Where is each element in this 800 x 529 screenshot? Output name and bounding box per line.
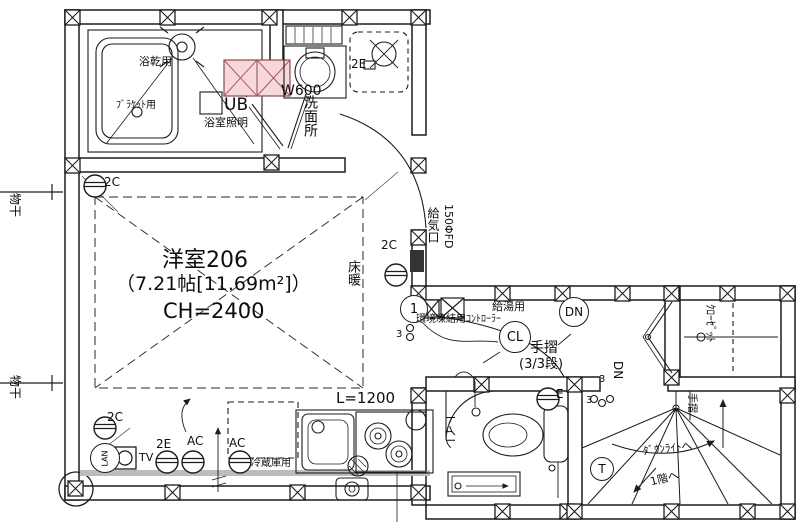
outlet-2c-right-icon [385, 264, 407, 286]
toilet-bowl [483, 414, 543, 456]
t-symbol-badge: T [590, 457, 614, 481]
cl-text: CL [507, 330, 523, 345]
outlet-2e-top-label: 2E [351, 58, 366, 70]
room-name-label: 洋室206 [162, 250, 248, 272]
floor-plan: 浴乾用 ﾌﾞﾗｹｯﾄ用 UB 浴室照明 洗面所 W600 2E 2C 2C 2C… [0, 0, 800, 529]
outlet-ac1-label: AC [187, 435, 203, 447]
tv-outlet-label: TV [139, 452, 153, 463]
toilet-name-label: トイレ [444, 413, 456, 449]
water-heater-label: 給湯用 [492, 301, 525, 312]
ub-label: UB [224, 97, 248, 114]
toilet-tank [544, 406, 568, 462]
ceiling-light-icon [370, 40, 398, 68]
downlight-icon [472, 408, 480, 416]
bathroom-light-label: 浴室照明 [204, 117, 248, 128]
supply-vent-label: 給気口 [427, 207, 439, 243]
laundry-pole-label-2: 物干 [9, 375, 21, 399]
handrail-steps-label: (3/3段) [519, 358, 563, 371]
room-area-label: （7.21帖[11.69m²]） [116, 275, 311, 294]
switch3-label-c: 3 [586, 396, 592, 406]
room-ceiling-height-label: CH=2400 [163, 301, 265, 322]
dn-hall-badge: DN [559, 297, 589, 327]
t-symbol-text: T [598, 462, 605, 476]
outlet-2c-right-label: 2C [381, 239, 397, 251]
lan-text: LAN [100, 450, 109, 466]
fridge-label: 冷蔵庫用 [251, 459, 291, 469]
cl-badge: CL [499, 321, 531, 353]
outlet-e-toilet-label: E [556, 388, 564, 400]
mirror [286, 26, 342, 44]
kitchen-length-label: L=1200 [336, 391, 395, 406]
dn-stairs-label: DN [612, 361, 624, 379]
lan-badge: LAN [90, 443, 120, 473]
ub-unit-box [200, 92, 222, 114]
supply-vent-size-label: 150ΦFD [443, 204, 454, 248]
switch3-label-a: 3 [396, 330, 402, 340]
closet-name-label: ｸﾛｰｾﾞｯﾄ [705, 304, 716, 343]
outlet-2e-bottom-icon [156, 451, 178, 473]
outlet-icons [84, 175, 407, 473]
outlet-2e-bottom-label: 2E [156, 438, 171, 450]
handrail-label: 手摺 [530, 341, 558, 355]
supply-vent-icon [410, 250, 424, 272]
floor-heating-label: 床暖 [346, 260, 359, 286]
controller-label: 環境凍結用ｺﾝﾄﾛｰﾗｰ [416, 315, 501, 325]
washroom-name-label: 洗面所 [303, 95, 317, 137]
washroom-width-label: W600 [281, 84, 322, 98]
outlet-2c-topleft-label: 2C [104, 176, 120, 188]
laundry-pole-label-1: 物干 [9, 193, 21, 217]
toilet-shelf [448, 472, 520, 496]
outlet-ac2-icon [229, 451, 251, 473]
faucet [312, 421, 324, 433]
outlet-ac1-icon [182, 451, 204, 473]
outlet-2c-bottom-label: 2C [107, 411, 123, 423]
bathroom-dryer-label: 浴乾用 [139, 56, 172, 67]
outlet-ac2-label: AC [229, 437, 245, 449]
bathroom-bracket-label: ﾌﾞﾗｹｯﾄ用 [116, 101, 156, 111]
switch3-label-b: 3 [599, 375, 605, 385]
stairs-handrail-label: 手摺 [686, 393, 696, 413]
outlet-2c-topleft-icon [84, 175, 106, 197]
dn-hall-text: DN [565, 305, 583, 319]
